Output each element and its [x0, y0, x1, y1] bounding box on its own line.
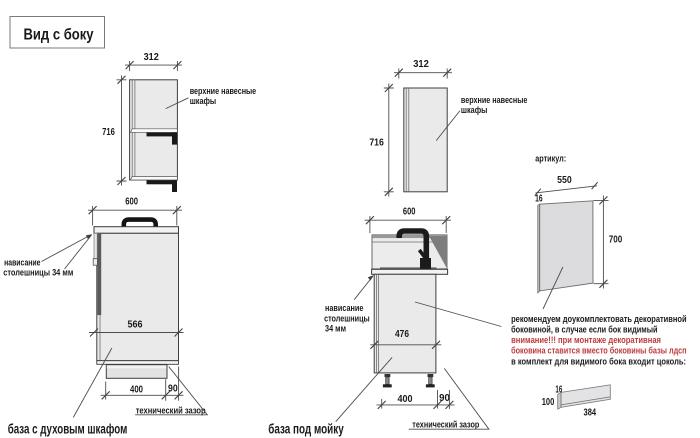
svg-text:716: 716 — [369, 137, 384, 148]
svg-text:476: 476 — [395, 329, 409, 340]
svg-text:столешницы: столешницы — [324, 314, 370, 324]
svg-text:Вид с боку: Вид с боку — [24, 27, 94, 44]
svg-text:нависание: нависание — [4, 257, 40, 267]
svg-text:столешницы 34 мм: столешницы 34 мм — [3, 268, 73, 278]
svg-text:внимание!!! при монтаже декора: внимание!!! при монтаже декоративная — [511, 335, 661, 345]
svg-text:312: 312 — [413, 59, 429, 70]
svg-text:550: 550 — [557, 175, 572, 186]
svg-text:артикул:: артикул: — [535, 154, 566, 164]
svg-text:боковиной, в случае если бок в: боковиной, в случае если бок видимый — [511, 324, 657, 334]
svg-text:боковина ставится вместо боков: боковина ставится вместо боковины базы л… — [511, 346, 686, 356]
svg-text:90: 90 — [168, 384, 178, 395]
svg-text:верхние навесные: верхние навесные — [461, 95, 528, 105]
svg-text:в комплект для видимого бока в: в комплект для видимого бока входит цоко… — [511, 356, 686, 366]
svg-text:16: 16 — [535, 194, 543, 205]
svg-text:база с духовым шкафом: база с духовым шкафом — [8, 421, 128, 436]
svg-text:нависание: нависание — [325, 303, 363, 313]
svg-text:шкафы: шкафы — [190, 96, 217, 106]
svg-text:100: 100 — [542, 397, 555, 408]
svg-text:312: 312 — [144, 52, 160, 63]
svg-text:34 мм: 34 мм — [325, 323, 346, 333]
svg-text:90: 90 — [439, 393, 450, 404]
svg-text:технический зазор: технический зазор — [412, 420, 479, 430]
svg-text:400: 400 — [398, 394, 413, 405]
svg-text:600: 600 — [125, 197, 138, 208]
svg-text:400: 400 — [130, 385, 143, 396]
svg-text:566: 566 — [128, 319, 143, 330]
svg-text:шкафы: шкафы — [461, 105, 488, 115]
svg-text:технический зазор: технический зазор — [136, 405, 206, 415]
svg-text:600: 600 — [403, 207, 416, 218]
svg-text:716: 716 — [102, 127, 115, 138]
svg-text:рекомендуем доукомплектовать д: рекомендуем доукомплектовать декоративно… — [511, 314, 686, 324]
svg-text:384: 384 — [584, 407, 597, 418]
svg-text:база под мойку: база под мойку — [268, 421, 344, 436]
svg-text:700: 700 — [609, 235, 623, 246]
svg-text:верхние навесные: верхние навесные — [190, 86, 257, 96]
